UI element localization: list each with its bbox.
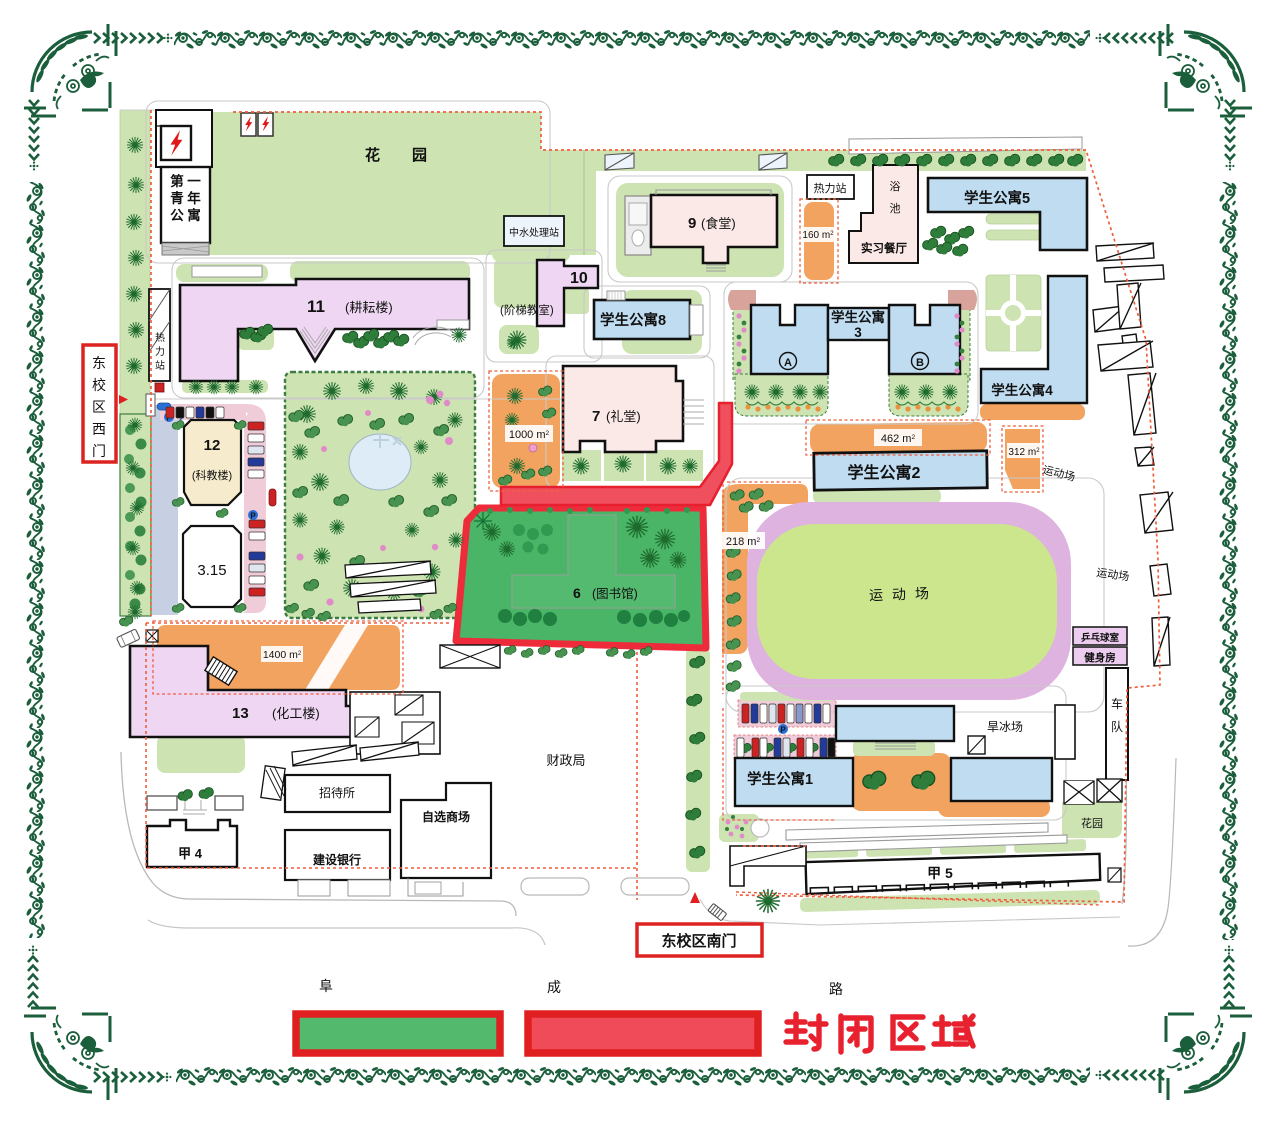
svg-text:学生公寓1: 学生公寓1 [747, 770, 813, 788]
svg-text:车: 车 [1111, 696, 1123, 711]
svg-text:(化工楼): (化工楼) [272, 706, 320, 721]
svg-text:学生公寓5: 学生公寓5 [964, 189, 1030, 207]
svg-text:花园: 花园 [1081, 817, 1103, 830]
svg-text:年: 年 [187, 190, 201, 206]
svg-text:实习餐厅: 实习餐厅 [861, 241, 907, 255]
svg-text:3.15: 3.15 [197, 562, 226, 579]
svg-text:乒乓球室: 乒乓球室 [1081, 632, 1120, 644]
svg-text:东: 东 [92, 355, 106, 371]
svg-text:11: 11 [307, 297, 325, 316]
svg-text:9: 9 [688, 215, 696, 232]
svg-text:学生公寓2: 学生公寓2 [848, 463, 921, 482]
svg-text:1400 m2: 1400 m2 [263, 649, 302, 661]
svg-text:学生公寓8: 学生公寓8 [600, 311, 666, 329]
svg-text:(图书馆): (图书馆) [592, 586, 638, 601]
svg-text:P: P [780, 726, 786, 735]
svg-text:建设银行: 建设银行 [312, 852, 361, 867]
svg-text:(礼堂): (礼堂) [606, 409, 641, 424]
svg-text:花: 花 [365, 146, 380, 164]
svg-text:力: 力 [155, 345, 165, 358]
svg-text:西: 西 [92, 421, 106, 437]
svg-text:青: 青 [170, 190, 184, 206]
svg-text:校: 校 [92, 377, 106, 393]
svg-text:路: 路 [829, 981, 843, 997]
svg-text:热: 热 [155, 331, 165, 344]
svg-text:东校区南门: 东校区南门 [661, 932, 736, 950]
svg-text:第: 第 [170, 173, 184, 189]
svg-text:池: 池 [890, 202, 901, 215]
svg-text:462 m2: 462 m2 [881, 433, 916, 445]
svg-text:7: 7 [592, 408, 600, 425]
svg-text:218 m2: 218 m2 [726, 536, 761, 548]
svg-text:A: A [784, 357, 792, 369]
svg-text:1000 m2: 1000 m2 [509, 429, 550, 441]
svg-text:160 m2: 160 m2 [802, 230, 834, 241]
svg-text:区: 区 [92, 399, 106, 415]
svg-text:甲 4: 甲 4 [178, 846, 203, 861]
svg-text:6: 6 [573, 585, 581, 601]
svg-text:(耕耘楼): (耕耘楼) [345, 300, 393, 315]
svg-text:3: 3 [854, 325, 862, 340]
svg-text:站: 站 [155, 359, 165, 372]
svg-text:学生公寓: 学生公寓 [831, 309, 885, 325]
svg-text:甲 5: 甲 5 [927, 865, 953, 881]
svg-text:自选商场: 自选商场 [422, 809, 470, 824]
svg-text:12: 12 [204, 437, 221, 454]
svg-text:健身房: 健身房 [1084, 651, 1116, 664]
svg-text:中水处理站: 中水处理站 [509, 226, 559, 239]
svg-text:一: 一 [187, 174, 201, 189]
svg-text:浴: 浴 [890, 180, 901, 193]
svg-text:运动场: 运动场 [869, 585, 939, 603]
svg-text:招待所: 招待所 [319, 786, 355, 800]
svg-text:13: 13 [232, 705, 249, 722]
svg-text:门: 门 [92, 443, 106, 459]
svg-text:312 m2: 312 m2 [1008, 447, 1040, 458]
svg-text:P: P [250, 512, 256, 521]
svg-text:阜: 阜 [319, 978, 333, 994]
svg-text:(食堂): (食堂) [701, 216, 736, 231]
svg-text:(阶梯教室): (阶梯教室) [500, 303, 554, 317]
svg-text:学生公寓4: 学生公寓4 [991, 382, 1053, 398]
svg-text:10: 10 [570, 270, 588, 287]
svg-text:园: 园 [412, 147, 427, 164]
svg-text:热力站: 热力站 [814, 181, 847, 195]
svg-text:B: B [916, 357, 924, 369]
svg-text:公: 公 [170, 208, 184, 223]
svg-text:成: 成 [547, 979, 561, 995]
svg-text:队: 队 [1111, 719, 1123, 734]
svg-text:旱冰场: 旱冰场 [987, 720, 1023, 734]
svg-text:(科教楼): (科教楼) [192, 468, 232, 482]
svg-text:寓: 寓 [187, 207, 201, 223]
svg-text:财政局: 财政局 [546, 753, 585, 768]
